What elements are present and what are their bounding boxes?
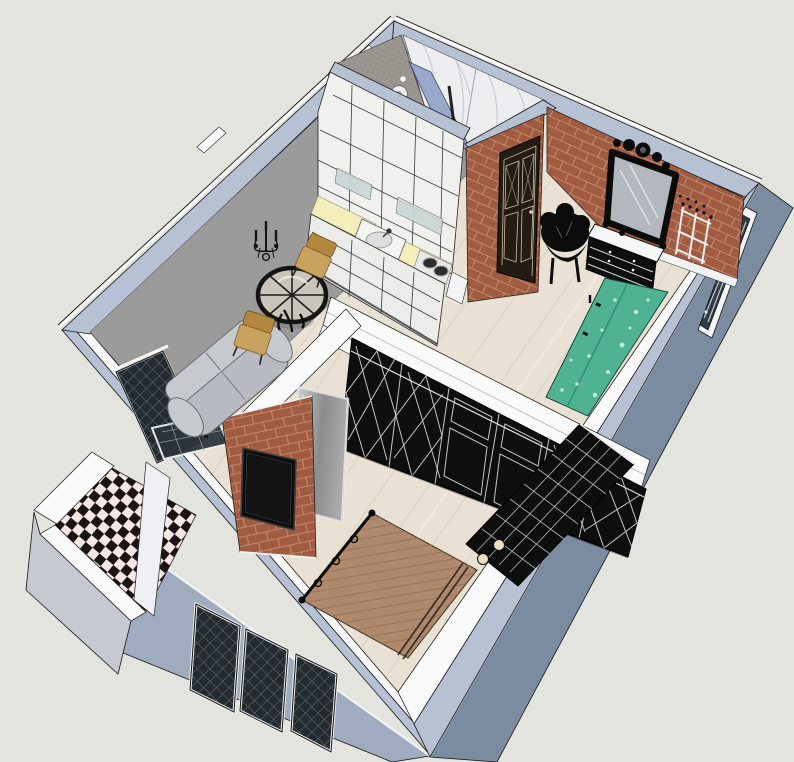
- bathroom-door[interactable]: [497, 136, 540, 283]
- door-handle: [704, 310, 707, 313]
- floorplan-render: [0, 0, 794, 762]
- tv[interactable]: [241, 448, 296, 530]
- door-handle: [529, 210, 533, 214]
- dresser-decor: [619, 230, 625, 236]
- ceiling-light: [400, 76, 406, 82]
